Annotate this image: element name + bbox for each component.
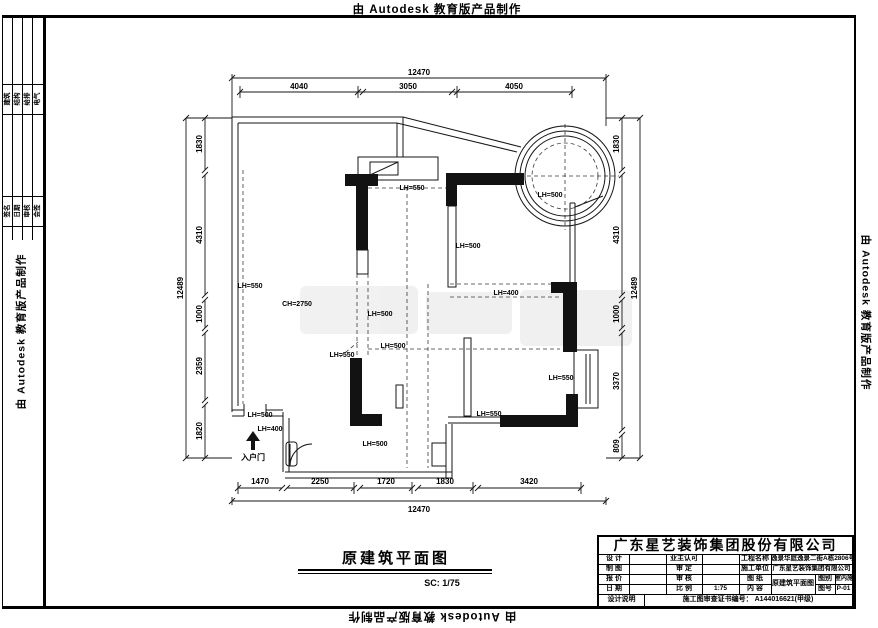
lh-label: LH=550 <box>237 283 262 290</box>
drawing-sheet: 由 Autodesk 教育版产品制作 由 Autodesk 教育版产品制作 由 … <box>0 0 878 628</box>
tb-label: 图别 <box>815 574 835 584</box>
entry-door-label: 入户门 <box>240 452 265 462</box>
dim: 809 <box>612 439 621 453</box>
dim: 3050 <box>399 82 417 91</box>
tb-content-name: 原建筑平面图 <box>771 574 815 594</box>
dim: 1000 <box>612 305 621 323</box>
tb-value-category: 室内施 <box>835 574 852 584</box>
tb-label-note: 设计说明 <box>599 594 644 606</box>
dim: 3420 <box>520 477 538 486</box>
tb-value-sheetno: P-01 <box>835 584 852 594</box>
company-name: 广东星艺装饰集团股份有限公司 <box>599 537 852 554</box>
dim-top-total: 12470 <box>408 68 431 77</box>
dim: 1830 <box>195 135 204 153</box>
tb-cert-label: 施工图审查证书编号： <box>683 596 753 603</box>
lh-label: LH=500 <box>362 441 387 448</box>
lh-label: LH=550 <box>399 185 424 192</box>
lh-label: LH=500 <box>380 343 405 350</box>
title-block: 广东星艺装饰集团股份有限公司 设 计 业主认可 工程名称 逸景华庭逸景二街A栋2… <box>597 535 854 608</box>
entry-arrow-icon <box>246 431 260 450</box>
tb-value-builder: 广东星艺装饰集团有限公司 <box>771 564 852 574</box>
dim: 1820 <box>195 422 204 440</box>
title-underline-2 <box>298 573 492 574</box>
tb-label: 图号 <box>815 584 835 594</box>
tb-label: 报 价 <box>599 574 629 584</box>
dim: 2250 <box>311 477 329 486</box>
tb-label: 图 纸 <box>739 574 771 584</box>
title-underline <box>298 569 492 571</box>
tb-label: 内 容 <box>739 584 771 594</box>
dim: 1000 <box>195 305 204 323</box>
ch-label: CH=2750 <box>282 301 312 308</box>
dim-bottom-total: 12470 <box>408 505 431 514</box>
lh-label: LH=400 <box>493 290 518 297</box>
dim: 1830 <box>612 135 621 153</box>
lh-label: LH=400 <box>257 426 282 433</box>
tb-label: 审 定 <box>666 564 702 574</box>
dim: 4040 <box>290 82 308 91</box>
tb-label: 施工单位 <box>739 564 771 574</box>
dim: 4050 <box>505 82 523 91</box>
tb-label: 审 核 <box>666 574 702 584</box>
dim: 1830 <box>436 477 454 486</box>
dim: 2359 <box>195 357 204 375</box>
tb-value-scale: 1:75 <box>702 584 739 594</box>
lh-label: LH=500 <box>537 192 562 199</box>
lh-label: LH=550 <box>476 411 501 418</box>
lh-label: LH=500 <box>247 412 272 419</box>
tb-label: 日 期 <box>599 584 629 594</box>
dim-left-total: 12489 <box>176 276 185 299</box>
dim: 4310 <box>612 226 621 244</box>
tb-label: 比 例 <box>666 584 702 594</box>
dim: 3370 <box>612 372 621 390</box>
tb-label: 制 图 <box>599 564 629 574</box>
lh-label: LH=500 <box>455 243 480 250</box>
scale-note: SC: 1/75 <box>392 578 492 588</box>
drawing-title: 原建筑平面图 <box>300 547 492 568</box>
tb-label: 工程名称 <box>739 554 771 564</box>
dim: 1720 <box>377 477 395 486</box>
lh-label: LH=550 <box>548 375 573 382</box>
dim: 1470 <box>251 477 269 486</box>
dim-right-total: 12489 <box>630 276 639 299</box>
dim: 4310 <box>195 226 204 244</box>
tb-value-project: 逸景华庭逸景二街A栋2806号 <box>771 554 852 564</box>
tb-cert-number: A144016621(甲级) <box>755 596 814 603</box>
lh-label: LH=500 <box>367 311 392 318</box>
tb-label: 业主认可 <box>666 554 702 564</box>
lh-label: LH=550 <box>329 352 354 359</box>
floor-plan-svg: 入户门 12470 4040 3050 <box>0 0 878 628</box>
tb-label: 设 计 <box>599 554 629 564</box>
faint-watermark <box>300 286 632 346</box>
